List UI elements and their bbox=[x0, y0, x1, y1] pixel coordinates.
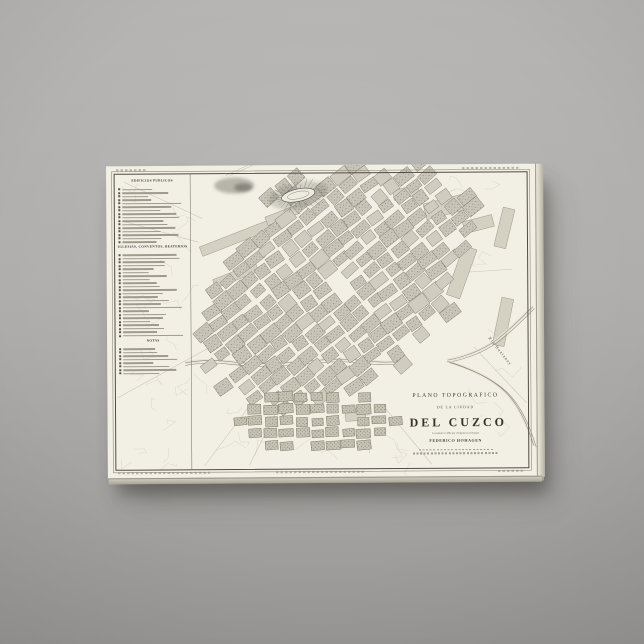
legend-item bbox=[119, 261, 190, 263]
map-sheet: Rio Huatanay EDIFICIOS PUBLICOSIGLESIAS,… bbox=[106, 164, 537, 479]
legend-item bbox=[119, 310, 190, 312]
legend-item bbox=[118, 237, 189, 239]
legend-item bbox=[119, 296, 190, 298]
legend-item bbox=[119, 324, 190, 326]
legend-item bbox=[119, 372, 190, 374]
legend-item bbox=[118, 195, 189, 197]
legend-item bbox=[118, 188, 189, 190]
legend-item bbox=[118, 216, 189, 218]
legend-item bbox=[119, 299, 190, 301]
imprint-line-icon bbox=[419, 449, 493, 451]
map-author: FEDERICO HOHAGEN bbox=[410, 438, 502, 443]
legend-item bbox=[119, 369, 190, 371]
legend-item bbox=[118, 209, 189, 211]
legend-item bbox=[118, 223, 189, 225]
legend-item bbox=[119, 306, 190, 308]
legend-item bbox=[119, 275, 190, 277]
map-title-line1: PLANO TOPOGRAFICO bbox=[409, 392, 501, 399]
legend-item bbox=[118, 213, 189, 215]
legend-item bbox=[119, 285, 190, 287]
legend-item bbox=[119, 334, 190, 336]
legend-item bbox=[118, 227, 189, 229]
map-title-main: DEL CUZCO bbox=[410, 415, 502, 431]
legend-item bbox=[119, 268, 190, 270]
legend-item bbox=[119, 365, 190, 367]
legend-item bbox=[119, 355, 190, 357]
map-subtitle: Levantado en 1861 por el Ingeniero del E… bbox=[410, 432, 502, 435]
map-title-line2: DE LA CIUDAD bbox=[410, 405, 502, 410]
legend-item bbox=[118, 220, 189, 222]
legend-item bbox=[119, 362, 190, 364]
legend-item bbox=[119, 313, 190, 315]
map-legend: EDIFICIOS PUBLICOSIGLESIAS, CONVENTOS, B… bbox=[115, 175, 191, 469]
legend-item bbox=[119, 289, 190, 291]
legend-item bbox=[118, 192, 189, 194]
legend-item bbox=[118, 202, 189, 204]
product-photo: { "scene": { "wall_color_top": "#b7b5b3"… bbox=[0, 0, 644, 644]
map-title-block: PLANO TOPOGRAFICO DE LA CIUDAD DEL CUZCO… bbox=[409, 392, 501, 454]
legend-item bbox=[119, 278, 190, 280]
legend-item bbox=[119, 348, 190, 350]
legend-item bbox=[119, 257, 190, 259]
legend-item bbox=[119, 351, 190, 353]
legend-item bbox=[119, 331, 190, 333]
legend-item bbox=[119, 264, 190, 266]
legend-item bbox=[119, 320, 190, 322]
legend-item bbox=[118, 206, 189, 208]
legend-item bbox=[119, 303, 190, 305]
legend-item bbox=[119, 358, 190, 360]
legend-section-title: IGLESIAS, CONVENTOS, BEATERIOS bbox=[116, 245, 190, 249]
legend-item bbox=[118, 234, 189, 236]
legend-item bbox=[119, 271, 190, 273]
legend-section-title: NOTAS bbox=[116, 338, 190, 342]
legend-item bbox=[119, 327, 190, 329]
legend-item bbox=[119, 254, 190, 256]
plate-number-text bbox=[462, 167, 520, 169]
legend-item bbox=[119, 292, 190, 294]
legend-item bbox=[119, 317, 190, 319]
legend-item bbox=[119, 282, 190, 284]
date-imprint-text bbox=[498, 470, 524, 472]
legend-section-title: EDIFICIOS PUBLICOS bbox=[115, 179, 189, 183]
legend-item bbox=[118, 230, 189, 232]
legend-item bbox=[118, 199, 189, 201]
legend-item bbox=[118, 241, 189, 243]
sheet-number-text bbox=[116, 169, 146, 171]
canvas-print[interactable]: Rio Huatanay EDIFICIOS PUBLICOSIGLESIAS,… bbox=[106, 164, 544, 484]
